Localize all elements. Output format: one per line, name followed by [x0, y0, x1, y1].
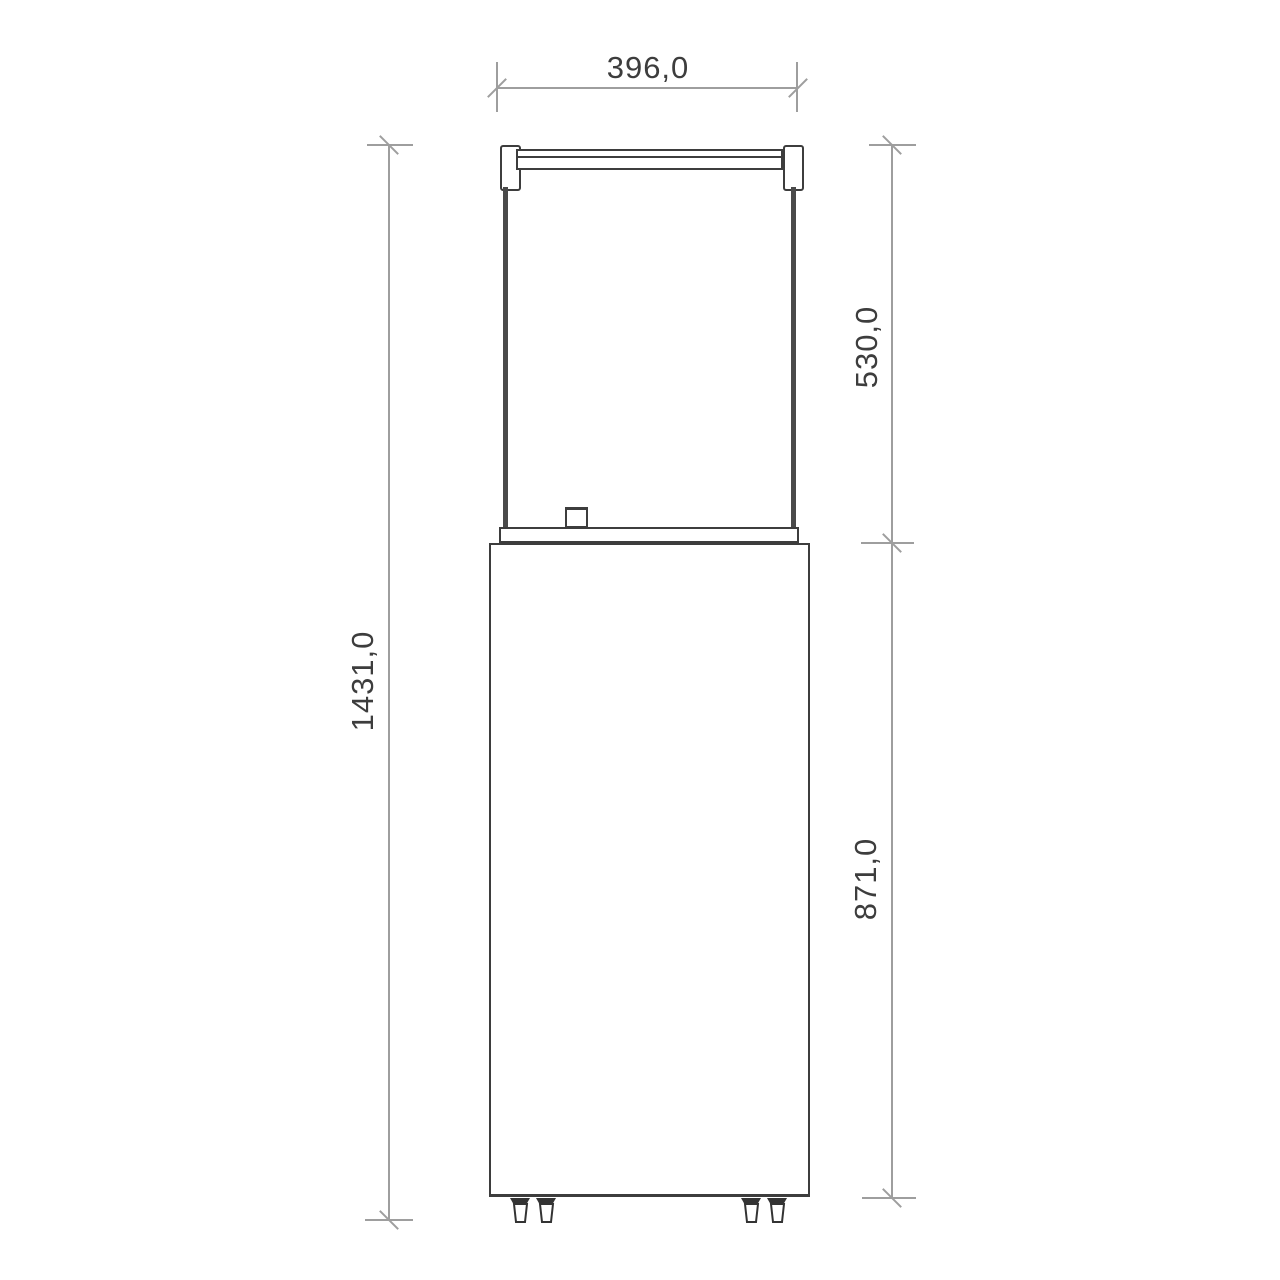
width-dimension-label: 396,0 [607, 50, 690, 86]
glass-panel-right-edge [791, 187, 796, 528]
burner-plate [499, 527, 799, 543]
top-cap-rail-inner-line [516, 156, 783, 158]
burner-knob [565, 507, 588, 528]
top-cap-rail [516, 149, 783, 170]
extension-line [861, 542, 914, 544]
cabinet-body [489, 543, 810, 1197]
glass-height-dimension-label: 530,0 [849, 306, 885, 389]
top-cap-right-post [783, 145, 804, 191]
dimension-line [497, 87, 798, 89]
glass-panel-left-edge [503, 187, 508, 528]
dimension-line [388, 145, 390, 1220]
technical-drawing-canvas: 396,0 1431,0 530,0 871,0 [0, 0, 1280, 1280]
caster-wheels-right [741, 1197, 788, 1224]
caster-wheels-left [510, 1197, 557, 1224]
total-height-dimension-label: 1431,0 [345, 631, 381, 732]
body-height-dimension-label: 871,0 [848, 838, 884, 921]
dimension-line [891, 145, 893, 1198]
